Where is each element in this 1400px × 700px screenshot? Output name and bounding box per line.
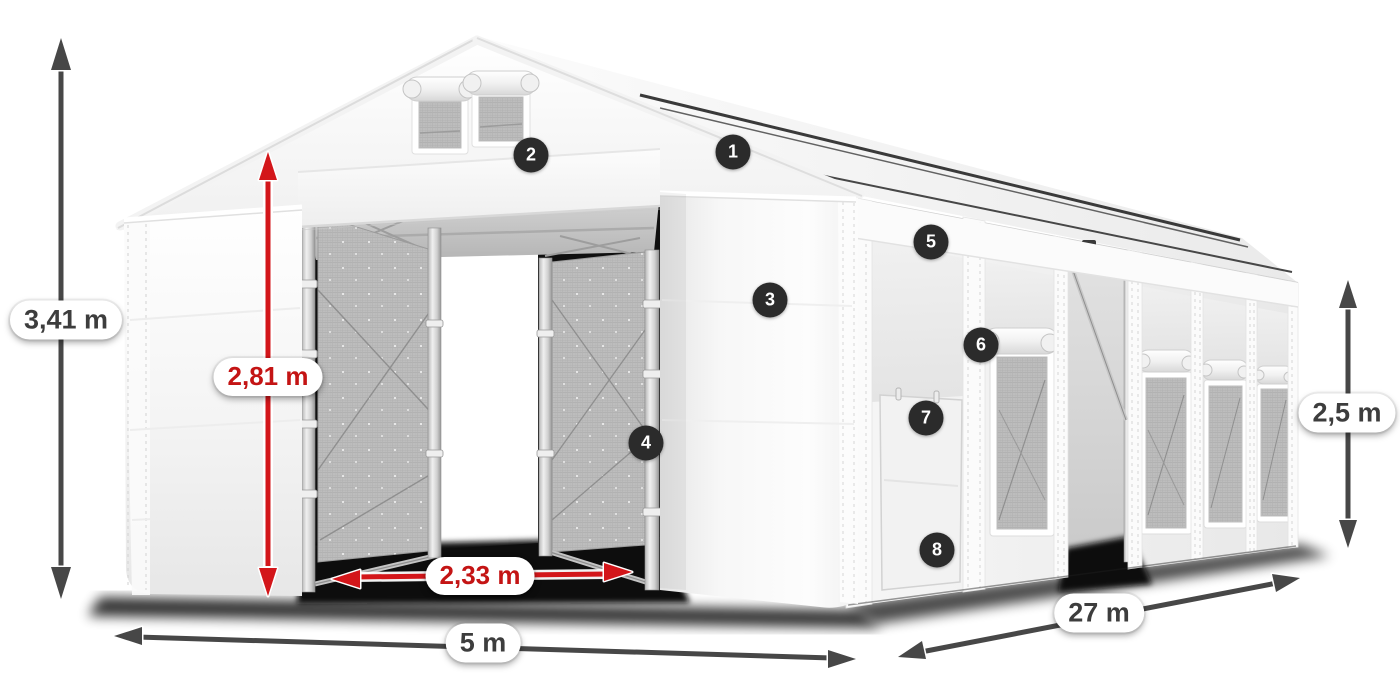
interior-mesh-left [318,215,438,562]
dimension-label-side-length: 27 m [1054,593,1144,632]
dimension-label-side-height: 2,5 m [1298,393,1395,432]
side-window-1 [981,328,1059,536]
front-left-wall [124,207,302,596]
feature-marker-6: 6 [964,328,999,363]
side-window-3 [1200,360,1250,528]
feature-marker-7: 7 [909,401,944,436]
dimension-label-door-height: 2,81 m [214,358,323,396]
through-passage [441,232,538,549]
feature-marker-4: 4 [629,426,664,461]
feature-marker-2: 2 [514,138,549,173]
tent-illustration [0,0,1400,700]
feature-marker-3: 3 [753,283,788,318]
dimension-label-door-width: 2,33 m [426,557,535,595]
feature-marker-1: 1 [716,135,751,170]
feature-marker-5: 5 [914,225,949,260]
product-diagram: 3,41 m 2,81 m 2,33 m 5 m 27 m 2,5 m 1 2 … [0,0,1400,700]
vent-window-right [463,71,539,147]
interior-mesh-right [552,252,645,552]
side-window-2 [1136,350,1196,534]
front-opening [297,191,690,604]
feature-marker-8: 8 [920,533,955,568]
dimension-label-front-width: 5 m [446,623,521,662]
dimension-label-total-height: 3,41 m [10,300,122,339]
front-right-wall [660,192,858,608]
